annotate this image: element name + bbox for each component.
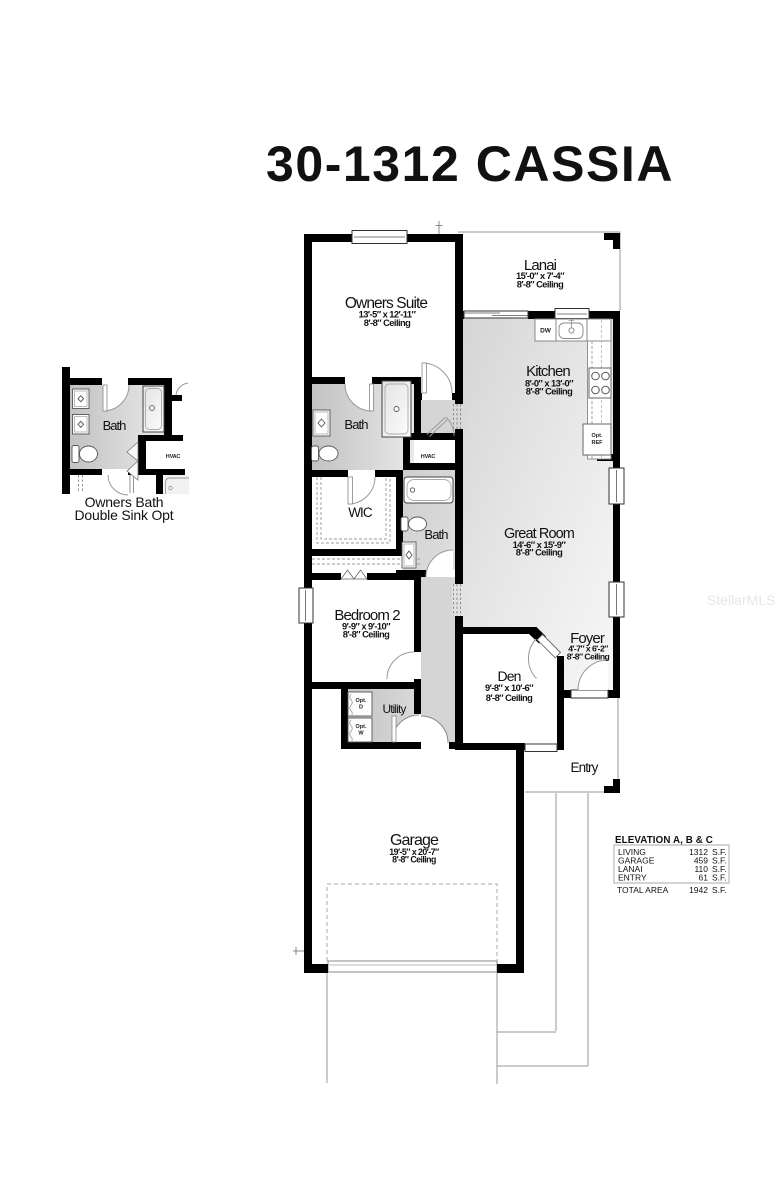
svg-text:Utility: Utility: [382, 702, 406, 716]
svg-text:TOTAL AREA: TOTAL AREA: [617, 885, 669, 895]
svg-text:S.F.: S.F.: [712, 885, 727, 895]
svg-text:Opt.: Opt.: [356, 724, 367, 730]
svg-text:WIC: WIC: [348, 505, 373, 520]
svg-text:ELEVATION A, B & C: ELEVATION A, B & C: [615, 835, 713, 846]
svg-text:REF: REF: [592, 440, 604, 446]
svg-text:W: W: [358, 731, 364, 737]
svg-text:Bath: Bath: [103, 418, 127, 433]
svg-text:8′-8″ Ceiling: 8′-8″ Ceiling: [392, 855, 436, 865]
svg-text:ENTRY: ENTRY: [618, 873, 647, 883]
svg-text:8′-8″ Ceiling: 8′-8″ Ceiling: [516, 548, 563, 558]
svg-text:61: 61: [699, 873, 709, 883]
svg-text:Opt.: Opt.: [356, 698, 367, 704]
svg-text:1942: 1942: [689, 885, 708, 895]
svg-text:30-1312 CASSIA: 30-1312 CASSIA: [266, 136, 674, 192]
svg-text:Bath: Bath: [344, 417, 368, 432]
svg-text:8′-8″ Ceiling: 8′-8″ Ceiling: [517, 280, 564, 290]
svg-text:Entry: Entry: [570, 760, 598, 775]
svg-text:9′-8″ x 10′-6″: 9′-8″ x 10′-6″: [485, 683, 534, 693]
svg-text:Double Sink Opt: Double Sink Opt: [75, 507, 174, 523]
svg-text:HVAC: HVAC: [166, 454, 181, 460]
svg-text:D: D: [359, 705, 363, 711]
svg-text:Opt.: Opt.: [592, 433, 603, 439]
svg-text:Den: Den: [498, 668, 521, 684]
svg-text:Bath: Bath: [424, 527, 448, 542]
svg-text:Kitchen: Kitchen: [526, 363, 570, 380]
svg-text:8′-8″ Ceiling: 8′-8″ Ceiling: [486, 693, 533, 703]
svg-text:S.F.: S.F.: [712, 873, 727, 883]
svg-text:8′-8″ Ceiling: 8′-8″ Ceiling: [567, 652, 610, 662]
svg-text:DW: DW: [540, 328, 552, 335]
svg-text:StellarMLS: StellarMLS: [707, 592, 775, 608]
svg-text:8′-8″ Ceiling: 8′-8″ Ceiling: [364, 318, 411, 328]
svg-text:8′-8″ Ceiling: 8′-8″ Ceiling: [526, 387, 573, 397]
svg-text:HVAC: HVAC: [421, 454, 436, 460]
svg-text:8′-8″ Ceiling: 8′-8″ Ceiling: [343, 630, 390, 640]
